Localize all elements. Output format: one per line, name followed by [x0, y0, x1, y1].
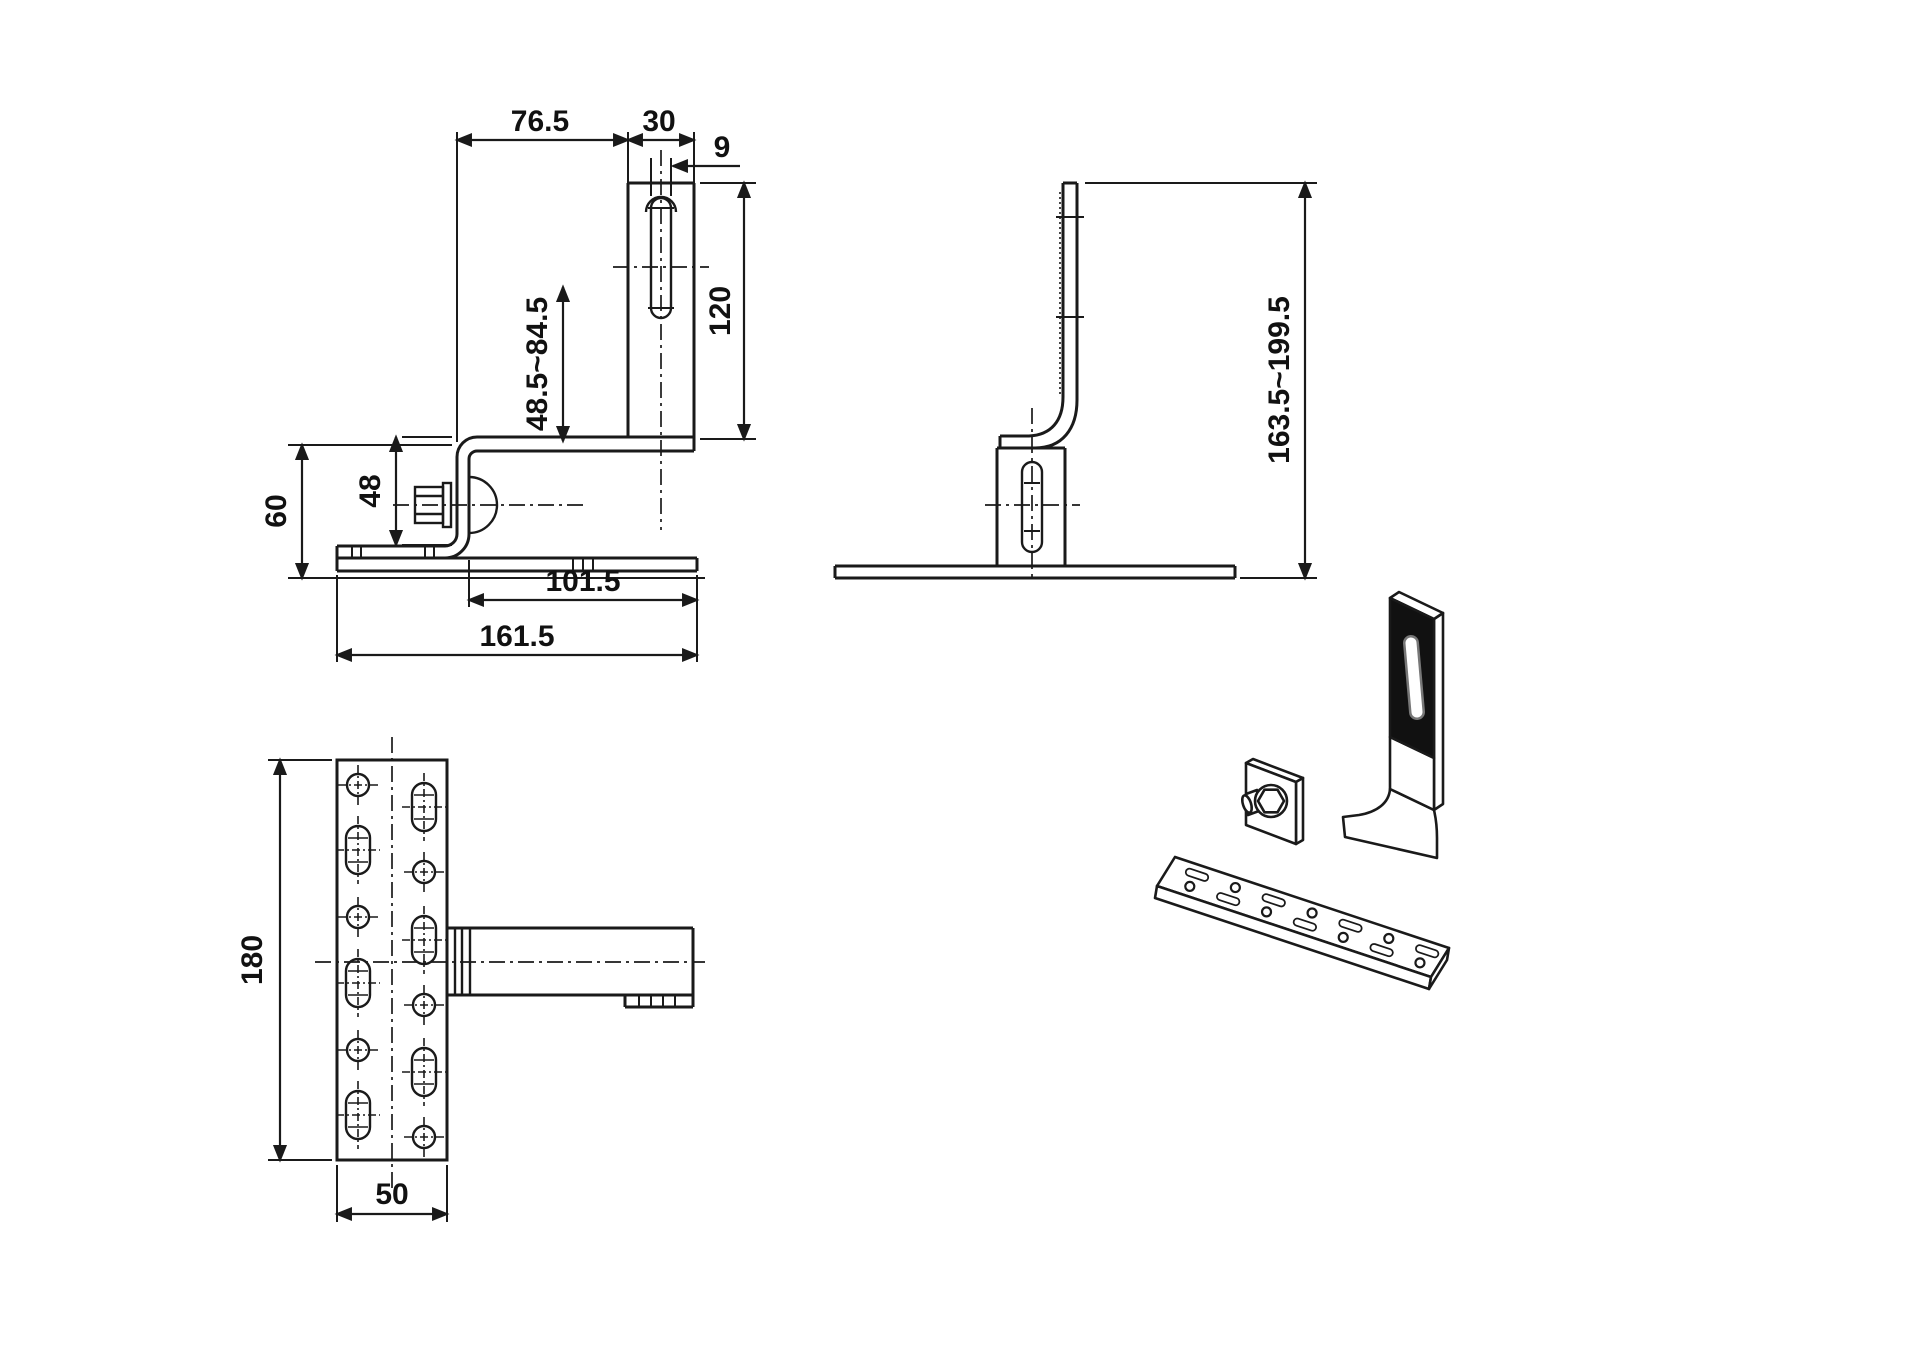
iso-strap-side-face [1434, 613, 1443, 810]
dim-plate-length: 180 [236, 935, 269, 985]
sheet-background [0, 0, 1920, 1357]
drawing-sheet: 76.5 30 9 120 48.5~84.5 48 60 101.5 [0, 0, 1920, 1357]
dim-plate-width: 50 [375, 1178, 408, 1211]
iso-hole-circle [1262, 907, 1271, 916]
dim-base-height: 60 [260, 494, 293, 527]
dim-strap-width: 30 [642, 105, 675, 138]
iso-hole-circle [1339, 933, 1348, 942]
iso-hole-circle [1231, 883, 1240, 892]
dim-slot-width: 9 [714, 131, 731, 164]
dim-clamp-height: 48 [354, 474, 387, 507]
iso-bolt-nut [1258, 790, 1284, 813]
dim-overall-length: 161.5 [479, 620, 554, 653]
iso-hole-circle [1415, 958, 1424, 967]
dim-foot-length: 101.5 [545, 565, 620, 598]
iso-slot [1411, 643, 1417, 712]
dim-top-width: 76.5 [511, 105, 569, 138]
technical-drawing: 76.5 30 9 120 48.5~84.5 48 60 101.5 [0, 0, 1920, 1357]
dim-height-range: 163.5~199.5 [1263, 296, 1296, 464]
iso-hole-circle [1308, 909, 1317, 918]
iso-hole-circle [1185, 882, 1194, 891]
iso-hole-circle [1384, 934, 1393, 943]
dim-adjust-range: 48.5~84.5 [521, 297, 554, 431]
dim-strap-length: 120 [704, 286, 737, 336]
